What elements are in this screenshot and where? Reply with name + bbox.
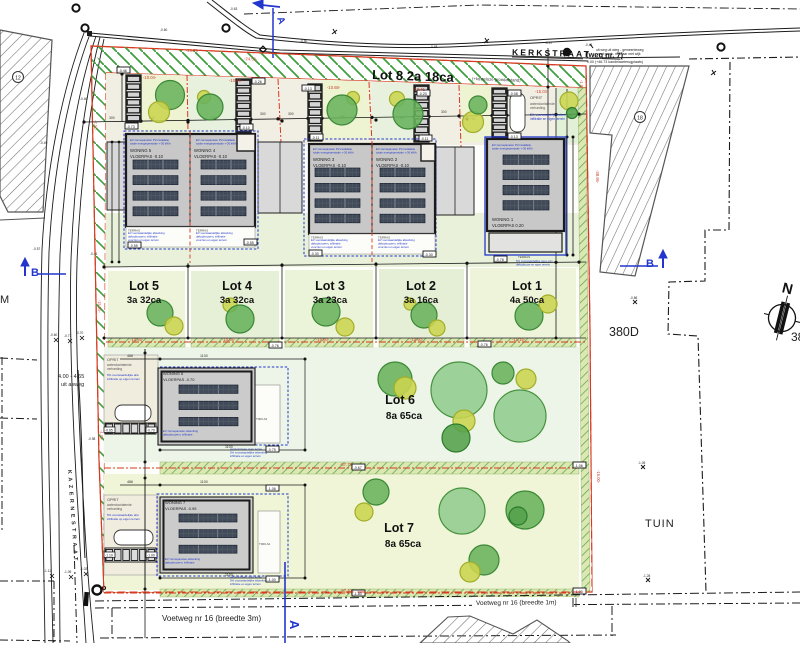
svg-text:verharding: verharding xyxy=(107,507,122,511)
svg-text:T000 A2: T000 A2 xyxy=(259,542,271,546)
svg-text:-0.86: -0.86 xyxy=(630,296,637,300)
svg-text:-0.30: -0.30 xyxy=(311,252,319,256)
svg-text:voorzien en eigen terrein: voorzien en eigen terrein xyxy=(311,245,342,249)
svg-text:8a 65ca: 8a 65ca xyxy=(385,539,422,550)
svg-text:TERRAS: TERRAS xyxy=(378,236,390,240)
svg-text:WONING 5: WONING 5 xyxy=(130,148,152,153)
svg-text:VLOERPAS -0.10: VLOERPAS -0.10 xyxy=(194,154,228,159)
svg-text:dakopbouwen, infiltratie: dakopbouwen, infiltratie xyxy=(165,561,195,565)
svg-text:4.00 - 4.65: 4.00 - 4.65 xyxy=(58,374,84,380)
svg-text:OPRIT: OPRIT xyxy=(107,358,119,362)
svg-text:-1.05: -1.05 xyxy=(638,461,645,465)
svg-text:TERRAS: TERRAS xyxy=(196,229,208,233)
svg-text:-0.75: -0.75 xyxy=(268,448,276,452)
svg-text:TERRAS: TERRAS xyxy=(311,236,323,240)
svg-text:-0.30: -0.30 xyxy=(425,253,433,257)
svg-text:-0.08: -0.08 xyxy=(510,92,518,96)
svg-text:3a 32ca: 3a 32ca xyxy=(127,295,162,306)
svg-text:-0.49: -0.49 xyxy=(40,141,47,145)
svg-text:-0.76: -0.76 xyxy=(271,344,279,348)
svg-text:verharding: verharding xyxy=(530,106,545,110)
svg-text:-0.98: -0.98 xyxy=(88,437,95,441)
svg-text:-4.73-: -4.73- xyxy=(99,430,104,441)
svg-text:18: 18 xyxy=(637,116,643,122)
svg-text:-1.02: -1.02 xyxy=(80,567,87,571)
svg-text:infiltratie op eigen terrein: infiltratie op eigen terrein xyxy=(107,377,140,381)
svg-text:-1.00: -1.00 xyxy=(268,578,276,582)
svg-text:-1.06: -1.06 xyxy=(575,464,583,468)
svg-text:-15.00-: -15.00- xyxy=(596,470,601,484)
svg-text:-0.60: -0.60 xyxy=(160,28,167,32)
svg-text:verharding: verharding xyxy=(107,367,122,371)
svg-text:Voetweg nr 16 (breedte 1m): Voetweg nr 16 (breedte 1m) xyxy=(476,599,557,607)
svg-text:uit asweg: uit asweg xyxy=(61,382,84,388)
svg-text:3a 32ca: 3a 32ca xyxy=(220,295,255,306)
svg-text:voorzien en eigen terrein: voorzien en eigen terrein xyxy=(196,238,227,242)
svg-text:-0.13: -0.13 xyxy=(304,87,312,91)
svg-text:-0.63: -0.63 xyxy=(230,7,237,11)
svg-text:300: 300 xyxy=(109,116,115,120)
svg-text:Voetweg nr 16 (breedte 3m): Voetweg nr 16 (breedte 3m) xyxy=(162,614,262,623)
svg-text:-0.46: -0.46 xyxy=(119,69,127,73)
svg-text:1100: 1100 xyxy=(200,480,208,484)
svg-text:1100: 1100 xyxy=(225,573,233,577)
svg-text:-10.41-: -10.41- xyxy=(413,87,427,92)
svg-text:-0.67: -0.67 xyxy=(354,466,362,470)
svg-text:WONING 6: WONING 6 xyxy=(163,371,184,376)
svg-text:1100: 1100 xyxy=(225,445,233,449)
svg-text:0.00 (+46.73 kandelaarterugpla: 0.00 (+46.73 kandelaarterugplaats) xyxy=(587,60,643,64)
svg-text:-0.50: -0.50 xyxy=(300,39,307,43)
svg-text:WONING 7: WONING 7 xyxy=(165,500,186,505)
svg-text:WONING 4: WONING 4 xyxy=(194,148,216,153)
svg-text:300: 300 xyxy=(441,110,447,114)
svg-text:B: B xyxy=(31,267,39,279)
svg-text:met goed - met jaar met wijk: met goed - met jaar met wijk xyxy=(598,52,641,56)
svg-text:38: 38 xyxy=(791,330,800,344)
svg-text:Lot 3: Lot 3 xyxy=(315,279,345,293)
svg-text:12: 12 xyxy=(15,76,21,82)
svg-text:totale energieprestatie +-30 k: totale energieprestatie +-30 kWh xyxy=(313,151,354,155)
svg-text:-1.28: -1.28 xyxy=(643,574,650,578)
svg-text:T000 A2: T000 A2 xyxy=(256,417,268,421)
svg-text:dakopbouwen, infiltratie: dakopbouwen, infiltratie xyxy=(163,433,193,437)
svg-text:VLOERPAS -0.70: VLOERPAS -0.70 xyxy=(163,377,195,382)
svg-text:-1.05: -1.05 xyxy=(64,570,71,574)
svg-text:A: A xyxy=(287,620,302,630)
svg-text:-0.70: -0.70 xyxy=(76,331,83,335)
svg-text:-10.04-: -10.04- xyxy=(143,75,157,80)
svg-text:infiltratie op eigen terrein: infiltratie op eigen terrein xyxy=(107,517,140,521)
svg-text:Lot 7: Lot 7 xyxy=(384,521,414,535)
svg-text:486: 486 xyxy=(127,480,133,484)
svg-text:totale energieprestatie +-30 k: totale energieprestatie +-30 kWh xyxy=(376,151,417,155)
svg-text:-1.06: -1.06 xyxy=(268,487,276,491)
svg-text:-15.03-: -15.03- xyxy=(535,89,549,94)
svg-text:-1.12: -1.12 xyxy=(44,569,51,573)
svg-text:-0.57: -0.57 xyxy=(33,247,40,251)
svg-text:infiltratie en eigen terrein: infiltratie en eigen terrein xyxy=(230,582,261,586)
svg-text:infiltratie en eigen terrein: infiltratie en eigen terrein xyxy=(530,117,565,121)
svg-text:Lot 2: Lot 2 xyxy=(406,279,436,293)
svg-text:TERRAS: TERRAS xyxy=(128,229,140,233)
svg-text:3a 23ca: 3a 23ca xyxy=(313,295,348,306)
svg-text:WONING 2: WONING 2 xyxy=(376,157,398,162)
svg-text:4a 50ca: 4a 50ca xyxy=(510,295,545,306)
svg-text:totale energieprestatie +-30 k: totale energieprestatie +-30 kWh xyxy=(196,142,237,146)
svg-text:-0.11: -0.11 xyxy=(421,137,429,141)
svg-text:-0.47: -0.47 xyxy=(545,41,552,45)
svg-text:Lot 1: Lot 1 xyxy=(512,279,542,293)
svg-text:VLOERPAS -0.95: VLOERPAS -0.95 xyxy=(165,506,197,511)
svg-text:-0.65: -0.65 xyxy=(105,429,113,433)
svg-text:-10.68-: -10.68- xyxy=(327,85,341,90)
svg-text:WONING 1: WONING 1 xyxy=(492,217,514,222)
svg-text:voorzien en eigen terrein: voorzien en eigen terrein xyxy=(378,245,409,249)
svg-text:B: B xyxy=(646,258,654,270)
svg-text:OPRIT: OPRIT xyxy=(530,95,543,100)
svg-text:-0.55: -0.55 xyxy=(130,244,138,248)
svg-text:-38.95-: -38.95- xyxy=(595,170,600,184)
svg-text:380D: 380D xyxy=(609,325,639,339)
svg-text:-0.70: -0.70 xyxy=(147,429,155,433)
svg-text:OPRIT: OPRIT xyxy=(107,498,119,502)
svg-text:-0.78: -0.78 xyxy=(496,258,504,262)
svg-text:-24.52-: -24.52- xyxy=(244,56,258,62)
svg-text:totale energieprestatie +-30 k: totale energieprestatie +-30 kWh xyxy=(130,142,171,146)
svg-text:-0.55: -0.55 xyxy=(246,241,254,245)
svg-text:-0.13: -0.13 xyxy=(510,135,518,139)
svg-text:M: M xyxy=(0,294,9,306)
svg-text:-0.20: -0.20 xyxy=(419,92,427,96)
svg-text:-1.00: -1.00 xyxy=(147,554,155,558)
svg-text:-1.10: -1.10 xyxy=(105,554,113,558)
svg-text:Lot 4: Lot 4 xyxy=(222,279,252,293)
svg-text:1100: 1100 xyxy=(200,354,208,358)
svg-text:-0.11: -0.11 xyxy=(312,136,320,140)
svg-text:-0.26: -0.26 xyxy=(254,80,262,84)
svg-text:VLOERPAS -0.10: VLOERPAS -0.10 xyxy=(376,163,410,168)
svg-text:dakopbouw en egen terrein: dakopbouw en egen terrein xyxy=(516,263,550,267)
svg-text:-0.10: -0.10 xyxy=(242,126,250,130)
svg-text:totale energieprestatie +-30 k: totale energieprestatie +-30 kWh xyxy=(492,147,533,151)
svg-text:WONING 3: WONING 3 xyxy=(313,157,335,162)
svg-text:300: 300 xyxy=(260,112,266,116)
svg-text:3a 16ca: 3a 16ca xyxy=(404,295,439,306)
svg-text:infiltratie en eigen terrein: infiltratie en eigen terrein xyxy=(230,454,261,458)
svg-text:Lot 6: Lot 6 xyxy=(385,393,415,407)
svg-text:TUIN: TUIN xyxy=(645,518,675,530)
svg-text:Lot 5: Lot 5 xyxy=(129,279,159,293)
svg-text:-0.60: -0.60 xyxy=(50,333,57,337)
svg-text:-0.76: -0.76 xyxy=(480,343,488,347)
svg-text:-10.46-: -10.46- xyxy=(229,78,243,83)
svg-text:-0.48: -0.48 xyxy=(430,45,437,49)
svg-text:8a 65ca: 8a 65ca xyxy=(386,411,423,422)
svg-text:VLOERPAS 0.20: VLOERPAS 0.20 xyxy=(492,223,524,228)
svg-text:300: 300 xyxy=(288,112,294,116)
svg-text:-0.46: -0.46 xyxy=(80,97,87,101)
svg-text:VLOERPAS -0.10: VLOERPAS -0.10 xyxy=(313,163,347,168)
svg-text:-0.77: -0.77 xyxy=(64,334,71,338)
svg-text:486: 486 xyxy=(127,354,133,358)
svg-text:VLOERPAS -0.10: VLOERPAS -0.10 xyxy=(130,154,164,159)
svg-text:-15.55-: -15.55- xyxy=(97,300,102,314)
svg-text:-0.73: -0.73 xyxy=(127,125,135,129)
